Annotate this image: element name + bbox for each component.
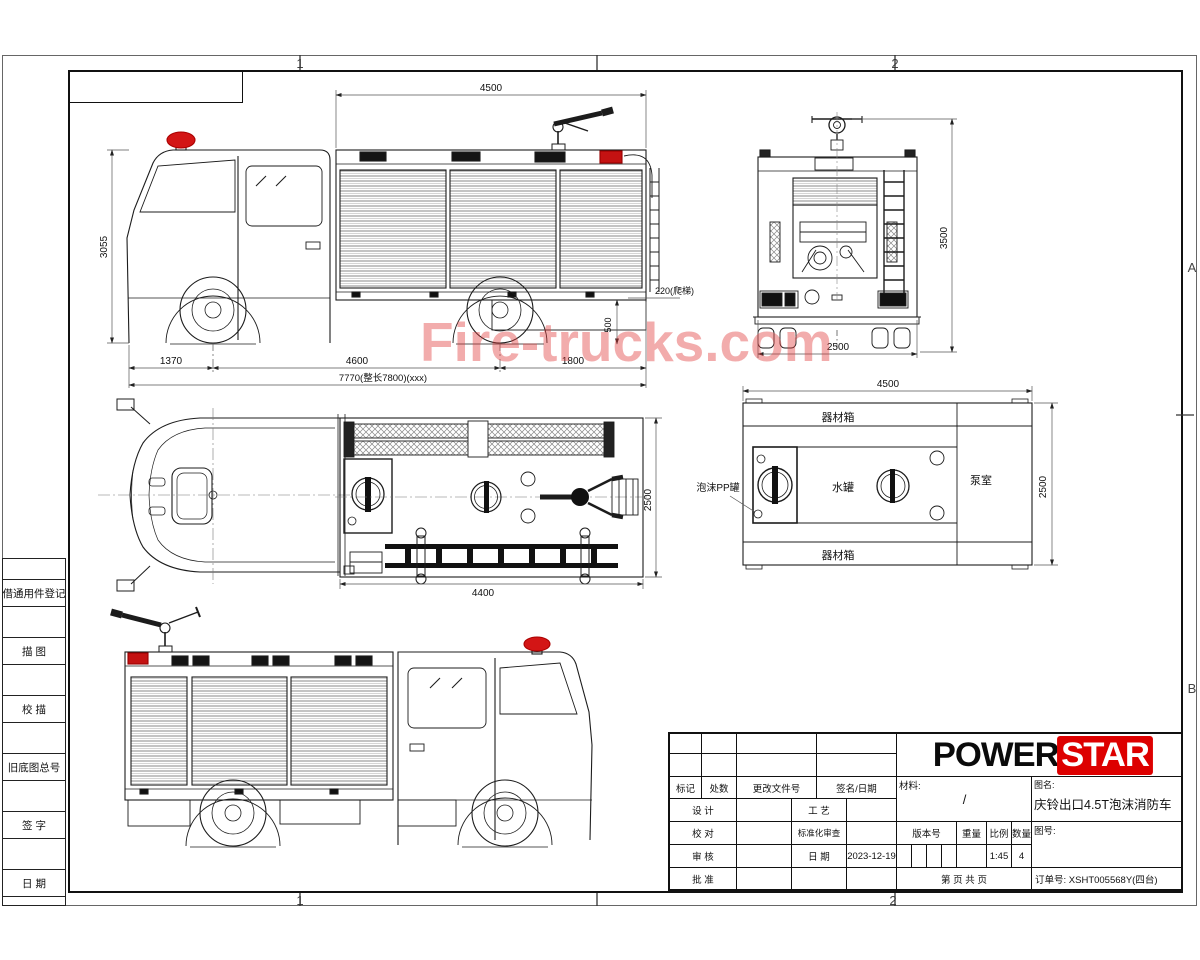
sheet-cell: 第 页 共 页 — [897, 868, 1032, 889]
roof-ladder — [385, 544, 618, 568]
order-value: XSHT005568Y(四台) — [1069, 872, 1158, 886]
version-subcell — [912, 845, 927, 868]
count-header: 处数 — [702, 777, 737, 799]
tank-plan-dim-text: 4500 2500 — [877, 379, 1049, 498]
weight-value — [957, 845, 987, 868]
beacon-icon — [167, 132, 195, 150]
order-cell: 订单号: XSHT005568Y(四台) — [1032, 868, 1181, 889]
standard-value — [847, 822, 897, 845]
drawing-no-label: 图号: — [1034, 823, 1056, 837]
scale-value: 1:45 — [987, 845, 1012, 868]
cab — [398, 652, 592, 845]
rev-cell — [670, 754, 702, 777]
dim-4500: 4500 — [480, 83, 503, 94]
order-label: 订单号: — [1035, 872, 1066, 886]
label-pump-room: 泵室 — [970, 473, 992, 487]
review-label: 审 核 — [670, 845, 737, 868]
weight-header: 重量 — [957, 822, 987, 845]
check-label: 校 对 — [670, 822, 737, 845]
date-label: 日 期 — [792, 845, 847, 868]
rev-cell — [702, 734, 737, 754]
rev-cell — [817, 734, 897, 754]
version-subcell — [927, 845, 942, 868]
material-value: / — [897, 777, 1032, 822]
label-foam-tank: 泡沫PP罐 — [696, 481, 739, 494]
rear-wheel — [186, 780, 280, 846]
version-header: 版本号 — [897, 822, 957, 845]
approve-label: 批 准 — [670, 868, 737, 889]
rev-cell — [737, 734, 817, 754]
tank-plan-labels: 器材箱 器材箱 泡沫PP罐 水罐 泵室 — [696, 410, 992, 562]
dim-3055: 3055 — [99, 235, 110, 258]
check-value — [737, 822, 792, 845]
front-wheel — [472, 780, 538, 846]
pump-assembly — [770, 222, 897, 272]
dim-220: 220(爬梯) — [655, 285, 694, 296]
logo-star-text: STAR — [1057, 736, 1153, 775]
design-label: 设 计 — [670, 799, 737, 822]
cab-top-view — [98, 399, 352, 591]
dim-2500-plan: 2500 — [1038, 475, 1049, 498]
drawing-name-value: 庆铃出口4.5T泡沫消防车 — [1034, 794, 1172, 813]
body-top-view — [335, 418, 650, 584]
dim-overall: 7770(整长7800)(xxx) — [339, 372, 427, 384]
design-value — [737, 799, 792, 822]
date-value: 2023-12-19 — [847, 845, 897, 868]
front-wheel — [180, 277, 246, 343]
foam-tank-plan — [730, 447, 797, 523]
side-view-cab-left — [127, 110, 659, 344]
change-doc-header: 更改文件号 — [737, 777, 817, 799]
mark-header: 标记 — [670, 777, 702, 799]
left-step-box — [344, 552, 382, 574]
fire-monitor-icon — [111, 607, 200, 652]
process-value — [847, 799, 897, 822]
dim-4600: 4600 — [346, 356, 369, 367]
drawing-name-cell: 图名: 庆铃出口4.5T泡沫消防车 — [1032, 777, 1181, 822]
water-manhole-plan — [877, 469, 909, 503]
logo-power-text: POWER — [933, 736, 1059, 775]
pump-bay-shutter — [793, 178, 877, 205]
rev-cell — [737, 754, 817, 777]
dim-2500-top: 2500 — [643, 488, 654, 511]
version-subcell — [942, 845, 957, 868]
label-water-tank: 水罐 — [832, 481, 854, 494]
dim-4400: 4400 — [472, 588, 495, 599]
suction-tubes — [344, 421, 614, 457]
qty-header: 数量 — [1012, 822, 1032, 845]
side-view-cab-right — [111, 607, 592, 847]
qty-value: 4 — [1012, 845, 1032, 868]
rear-red-light — [600, 151, 622, 163]
body — [125, 652, 393, 826]
rear-ladder — [650, 168, 659, 292]
rev-cell — [670, 734, 702, 754]
rev-cell — [817, 754, 897, 777]
foam-tank-top — [344, 459, 392, 533]
cab — [127, 150, 330, 343]
tank-plan-dimensions — [743, 386, 1058, 565]
front-red-light — [128, 653, 148, 664]
dim-3500: 3500 — [939, 226, 950, 249]
sign-date-header: 签名/日期 — [817, 777, 897, 799]
label-equipment-box-top: 器材箱 — [822, 410, 855, 424]
dim-4500-plan: 4500 — [877, 379, 900, 390]
title-block: 标记 处数 更改文件号 签名/日期 设 计 工 艺 校 对 标准化审查 审 核 … — [668, 732, 1183, 891]
fire-monitor-icon — [552, 110, 613, 150]
drawing-name-label: 图名: — [1034, 778, 1055, 791]
approve-value — [737, 868, 792, 889]
process-label: 工 艺 — [792, 799, 847, 822]
version-subcell — [897, 845, 912, 868]
drawing-no-cell: 图号: — [1032, 822, 1181, 868]
scale-header: 比例 — [987, 822, 1012, 845]
standard-label: 标准化审查 — [792, 822, 847, 845]
dim-1370: 1370 — [160, 356, 183, 367]
review-value — [737, 845, 792, 868]
watermark: Fire-trucks.com — [420, 310, 940, 374]
label-equipment-box-bottom: 器材箱 — [822, 548, 855, 562]
powerstar-logo: POWERSTAR — [905, 736, 1181, 775]
approve-cell — [847, 868, 897, 889]
rev-cell — [702, 754, 737, 777]
approve-cell — [792, 868, 847, 889]
tail-lights — [760, 290, 908, 308]
